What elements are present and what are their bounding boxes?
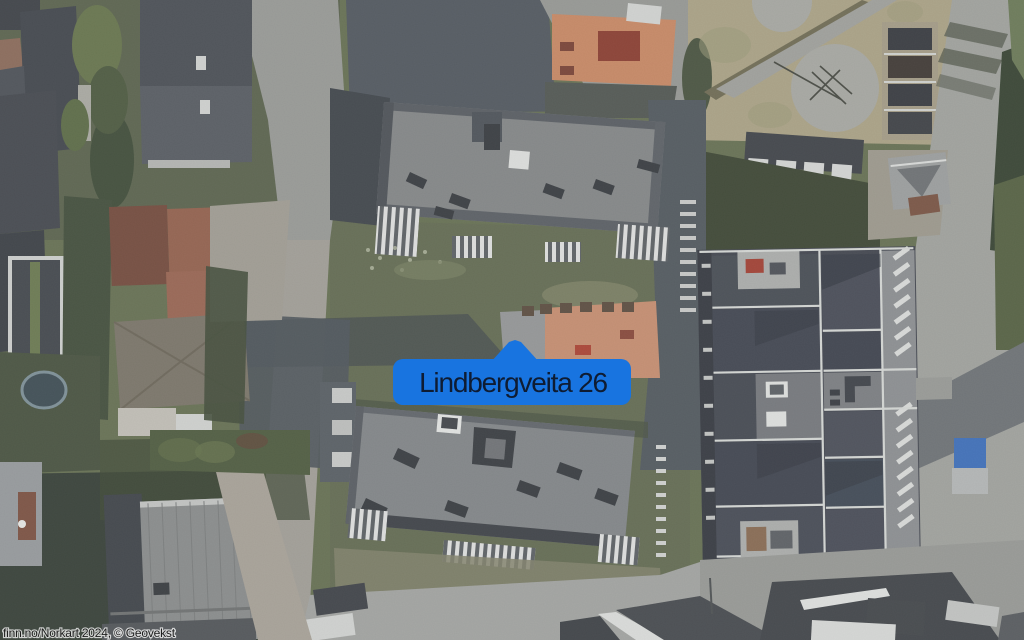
svg-text:finn.no/Norkart 2024, © Geovek: finn.no/Norkart 2024, © Geovekst bbox=[3, 626, 176, 640]
svg-text:Lindbergveita 26: Lindbergveita 26 bbox=[419, 367, 607, 398]
